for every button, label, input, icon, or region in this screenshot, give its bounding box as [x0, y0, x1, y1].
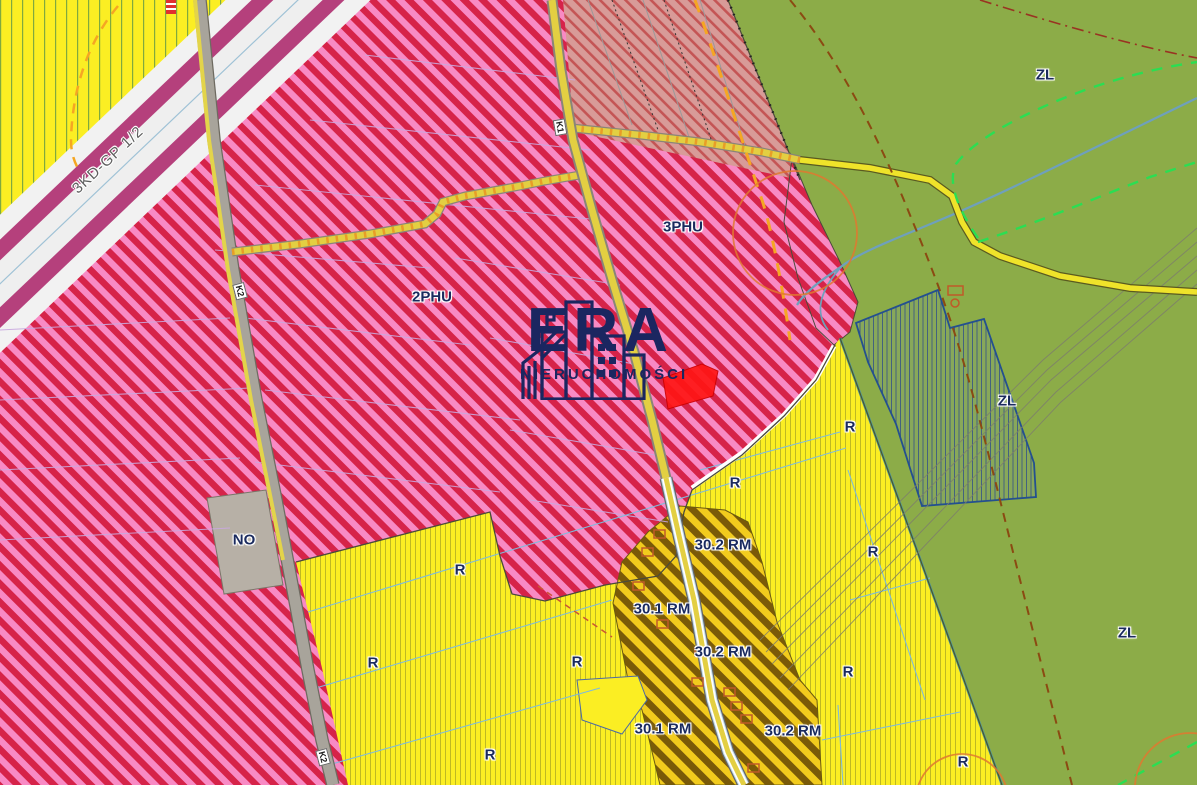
- era-watermark: ERA NIERUCHOMOŚCI: [520, 300, 680, 383]
- map-viewport[interactable]: 2PHU3PHUZLZLZLNORRRRRRRRR30.2 RM30.1 RM3…: [0, 0, 1197, 785]
- era-logo-buildings-icon: [520, 300, 646, 400]
- map-marker: [166, 0, 176, 14]
